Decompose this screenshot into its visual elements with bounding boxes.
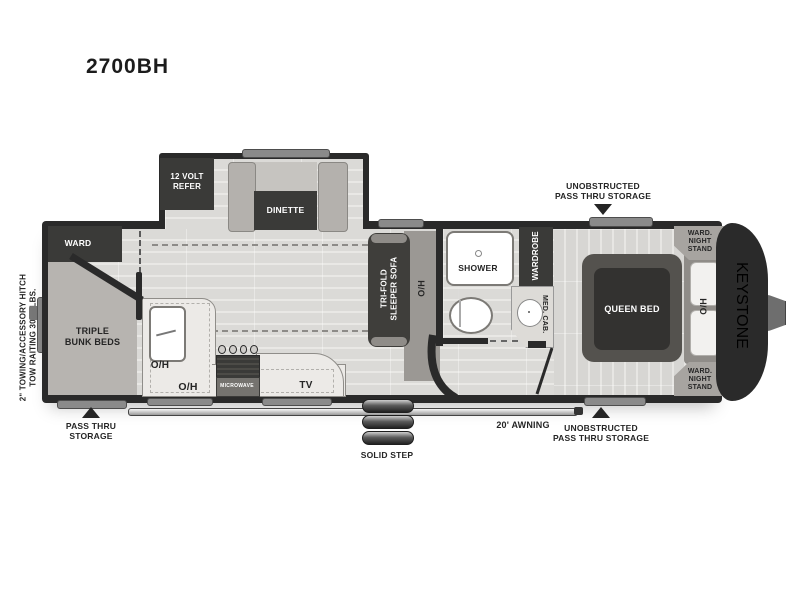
bath-dash xyxy=(490,340,518,342)
wardrobe-label: WARDROBE xyxy=(531,228,541,284)
storage-callout-top: UNOBSTRUCTED PASS THRU STORAGE xyxy=(540,181,666,201)
bath-wall-left xyxy=(436,228,443,346)
storage-arrow-top xyxy=(594,204,612,215)
slideout-window xyxy=(242,149,330,158)
cooktop xyxy=(216,355,260,379)
refrigerator-label: 12 VOLT REFER xyxy=(160,172,214,191)
awning-bar xyxy=(128,408,578,416)
storage-arrow-bottom-left xyxy=(82,407,100,418)
shower-label: SHOWER xyxy=(446,263,510,273)
microwave-label: MICROWAVE xyxy=(214,383,260,389)
storage-callout-bottom-right: UNOBSTRUCTED PASS THRU STORAGE xyxy=(544,423,658,443)
queen-bed-label: QUEEN BED xyxy=(582,304,682,315)
bath-wall-stub xyxy=(528,341,546,348)
lav-sink-drain xyxy=(528,311,530,313)
step-1 xyxy=(362,399,414,413)
entry-steps xyxy=(362,399,414,447)
tv-label: TV xyxy=(286,380,326,392)
dinette-tabletop xyxy=(254,162,317,192)
model-number: 2700BH xyxy=(86,56,169,77)
top-wall-window xyxy=(378,219,424,228)
front-wardrobe-label: WARD xyxy=(48,238,108,248)
kitchen-sink xyxy=(149,306,186,362)
top-storage-door xyxy=(589,217,653,227)
hitch-note: 2" TOWING/ACCESSORY HITCH TOW RAITING 30… xyxy=(18,248,37,428)
oh-sink-label: O/H xyxy=(140,360,180,372)
oh-counter-label: O/H xyxy=(168,381,208,394)
dinette-label: DINETTE xyxy=(252,205,319,215)
dinette-bench-left xyxy=(228,162,256,232)
awning-end-cap xyxy=(574,407,583,415)
sofa-label: TRI-FOLD SLEEPER SOFA xyxy=(379,234,398,344)
shower-stall xyxy=(446,231,514,286)
bottom-window-2 xyxy=(262,398,332,406)
bottom-window-1 xyxy=(147,398,213,406)
bottom-storage-door-right xyxy=(584,397,646,406)
oh-bedroom-label: O/H xyxy=(699,293,710,319)
oh-sofa-label: O/H xyxy=(417,273,428,303)
storage-callout-bottom-left: PASS THRU STORAGE xyxy=(51,421,131,441)
bath-wall-bottom xyxy=(436,338,488,344)
step-2 xyxy=(362,415,414,429)
slide-dash-top xyxy=(152,244,368,246)
dinette-bench-right xyxy=(318,162,348,232)
solid-step-label: SOLID STEP xyxy=(342,450,432,460)
hitch-note-line1: 2" TOWING/ACCESSORY HITCH xyxy=(18,248,28,428)
toilet-tank-line xyxy=(459,300,461,327)
storage-arrow-bottom-right xyxy=(592,407,610,418)
bunk-label: TRIPLE BUNK BEDS xyxy=(48,326,137,348)
bunk-door-track xyxy=(139,231,141,273)
toilet xyxy=(449,297,493,334)
stove-burners xyxy=(218,345,258,355)
shower-drain xyxy=(475,250,482,257)
brand-label: KEYSTONE xyxy=(734,262,750,366)
med-cab-label: MED. CAB. xyxy=(540,290,548,338)
step-3 xyxy=(362,431,414,445)
floorplan-canvas: 2700BH 2" TOWING/ACCESSORY HITCH TOW RAI… xyxy=(0,0,800,600)
